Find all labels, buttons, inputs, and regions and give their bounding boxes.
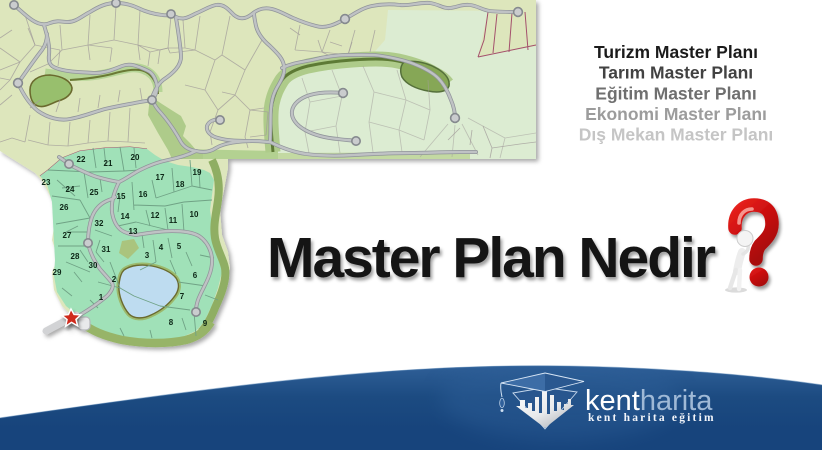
svg-text:6: 6 [193,271,198,280]
svg-text:8: 8 [169,318,174,327]
svg-text:Dış Mekan Master Planı: Dış Mekan Master Planı [579,125,774,145]
svg-text:kent harita eğitim: kent harita eğitim [588,412,716,424]
svg-text:18: 18 [176,180,185,189]
svg-text:2: 2 [112,275,117,284]
svg-text:Master Plan Nedir: Master Plan Nedir [267,226,716,290]
svg-text:9: 9 [203,319,208,328]
svg-text:13: 13 [129,227,138,236]
svg-text:15: 15 [117,192,126,201]
svg-text:5: 5 [177,242,182,251]
svg-text:14: 14 [121,212,130,221]
svg-text:22: 22 [77,155,86,164]
svg-text:20: 20 [131,153,140,162]
svg-text:29: 29 [53,268,62,277]
svg-text:23: 23 [42,178,51,187]
svg-text:3: 3 [145,251,150,260]
svg-text:Eğitim Master Planı: Eğitim Master Planı [595,84,756,104]
svg-text:24: 24 [66,185,75,194]
svg-text:Tarım Master Planı: Tarım Master Planı [599,63,753,83]
svg-text:27: 27 [63,231,72,240]
svg-text:1: 1 [99,293,104,302]
svg-text:10: 10 [190,210,199,219]
svg-text:26: 26 [60,203,69,212]
svg-text:12: 12 [151,211,160,220]
svg-text:30: 30 [89,261,98,270]
svg-text:17: 17 [156,173,165,182]
svg-text:7: 7 [180,292,185,301]
svg-text:28: 28 [71,252,80,261]
svg-text:19: 19 [193,168,202,177]
svg-text:4: 4 [159,243,164,252]
svg-text:Turizm Master Planı: Turizm Master Planı [594,42,758,62]
svg-text:32: 32 [95,219,104,228]
svg-text:16: 16 [139,190,148,199]
svg-text:31: 31 [102,245,111,254]
svg-text:25: 25 [90,188,99,197]
svg-text:Ekonomi Master Planı: Ekonomi Master Planı [585,104,767,124]
svg-text:21: 21 [104,159,113,168]
svg-text:11: 11 [169,216,178,225]
